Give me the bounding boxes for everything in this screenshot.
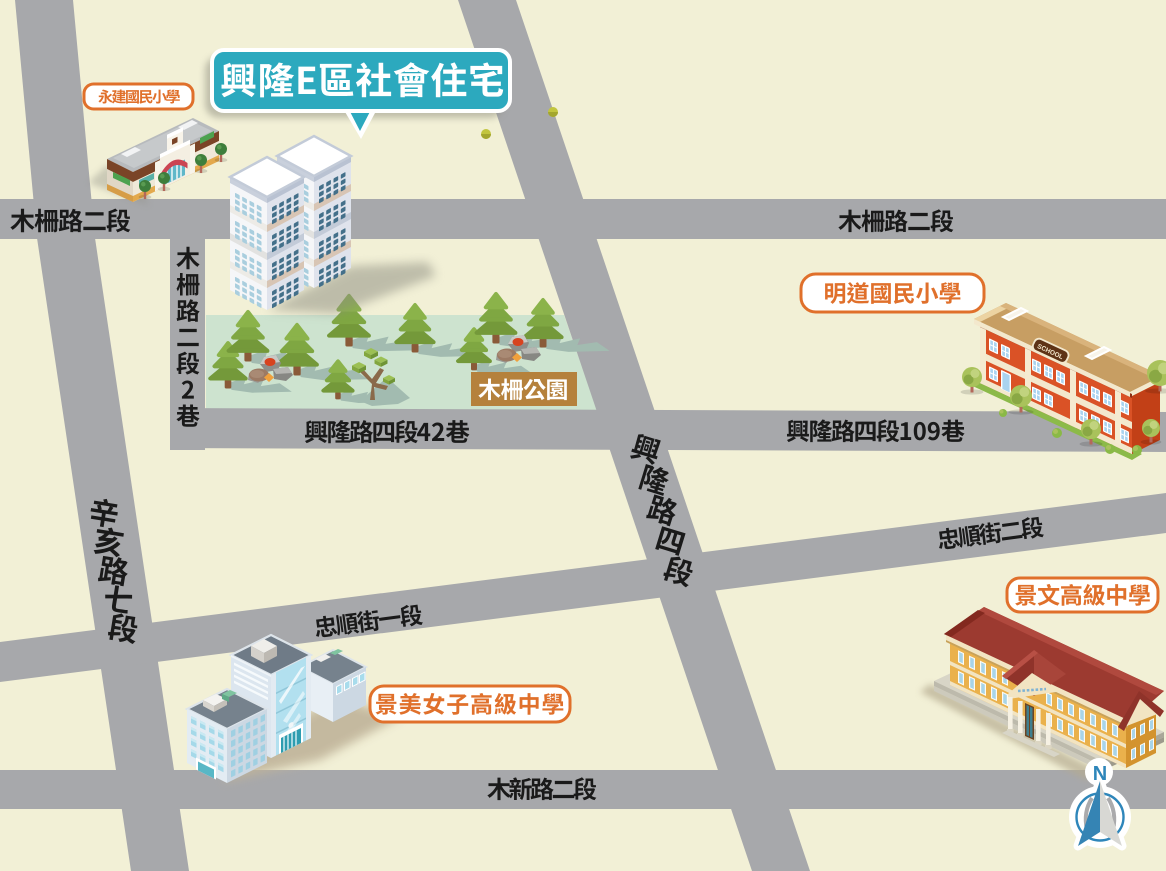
svg-text:N: N xyxy=(1093,763,1107,785)
